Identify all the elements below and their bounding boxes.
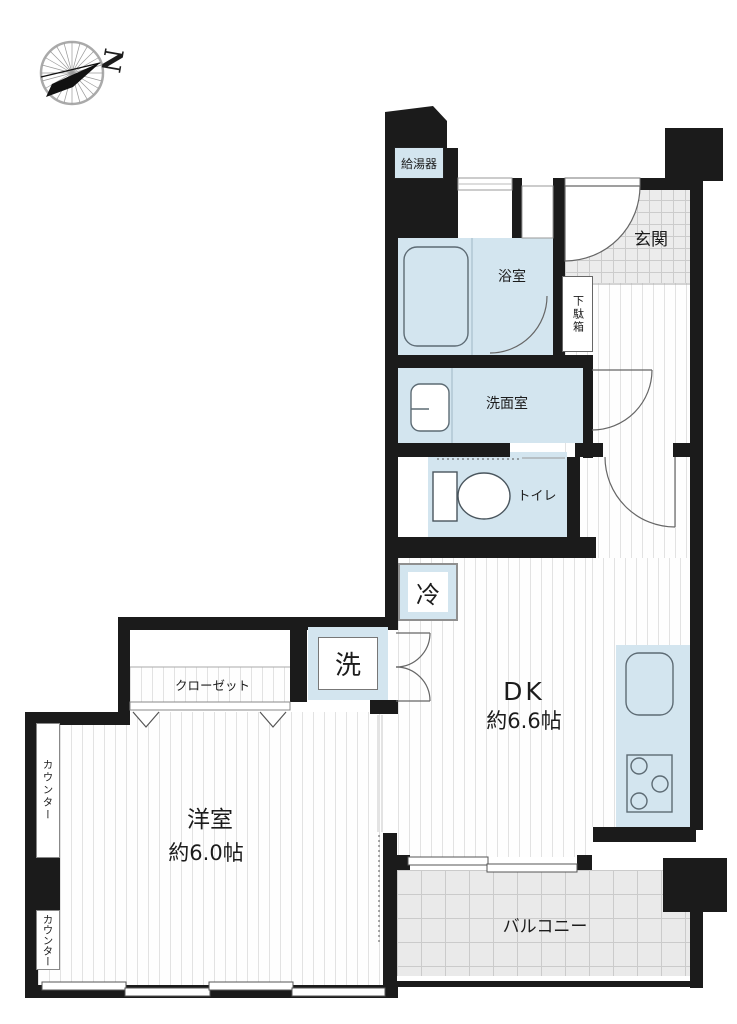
kitchen-counter bbox=[616, 645, 690, 827]
entrance-label: 玄関 bbox=[614, 230, 688, 251]
counter-lower-label: カウンター bbox=[41, 914, 56, 967]
dk-name-label: DK bbox=[464, 676, 584, 707]
washroom-label: 洗面室 bbox=[462, 396, 552, 414]
closet-label: クローゼット bbox=[140, 678, 285, 694]
floor-plan: N 給湯器 玄関 下駄箱 浴室 洗面室 トイレ 冷 洗 DK 約6.6帖 クロー… bbox=[0, 0, 737, 1024]
water-heater-box: 給湯器 bbox=[394, 147, 444, 179]
washer-box: 洗 bbox=[308, 627, 388, 700]
water-heater-label: 給湯器 bbox=[401, 155, 437, 172]
compass-north-label: N bbox=[92, 43, 129, 78]
refrigerator-box: 冷 bbox=[398, 563, 458, 621]
washer-label: 洗 bbox=[335, 645, 361, 682]
compass-needle bbox=[41, 62, 101, 97]
compass-icon bbox=[41, 42, 103, 104]
shoe-box: 下駄箱 bbox=[562, 276, 593, 352]
toilet-label: トイレ bbox=[505, 489, 569, 505]
western-room-size-label: 約6.0帖 bbox=[126, 840, 286, 866]
counter-lower: カウンター bbox=[36, 910, 60, 970]
bathroom-floor bbox=[398, 238, 553, 355]
bathroom-label: 浴室 bbox=[480, 269, 544, 287]
western-room-name-label: 洋室 bbox=[140, 806, 280, 835]
closet-track bbox=[130, 702, 290, 710]
balcony-label: バルコニー bbox=[470, 917, 620, 938]
dk-size-label: 約6.6帖 bbox=[454, 708, 594, 734]
refrigerator-label: 冷 bbox=[416, 575, 440, 610]
counter-upper-label: カウンター bbox=[41, 759, 56, 822]
counter-upper: カウンター bbox=[36, 723, 60, 858]
shoe-box-label: 下駄箱 bbox=[570, 295, 586, 334]
